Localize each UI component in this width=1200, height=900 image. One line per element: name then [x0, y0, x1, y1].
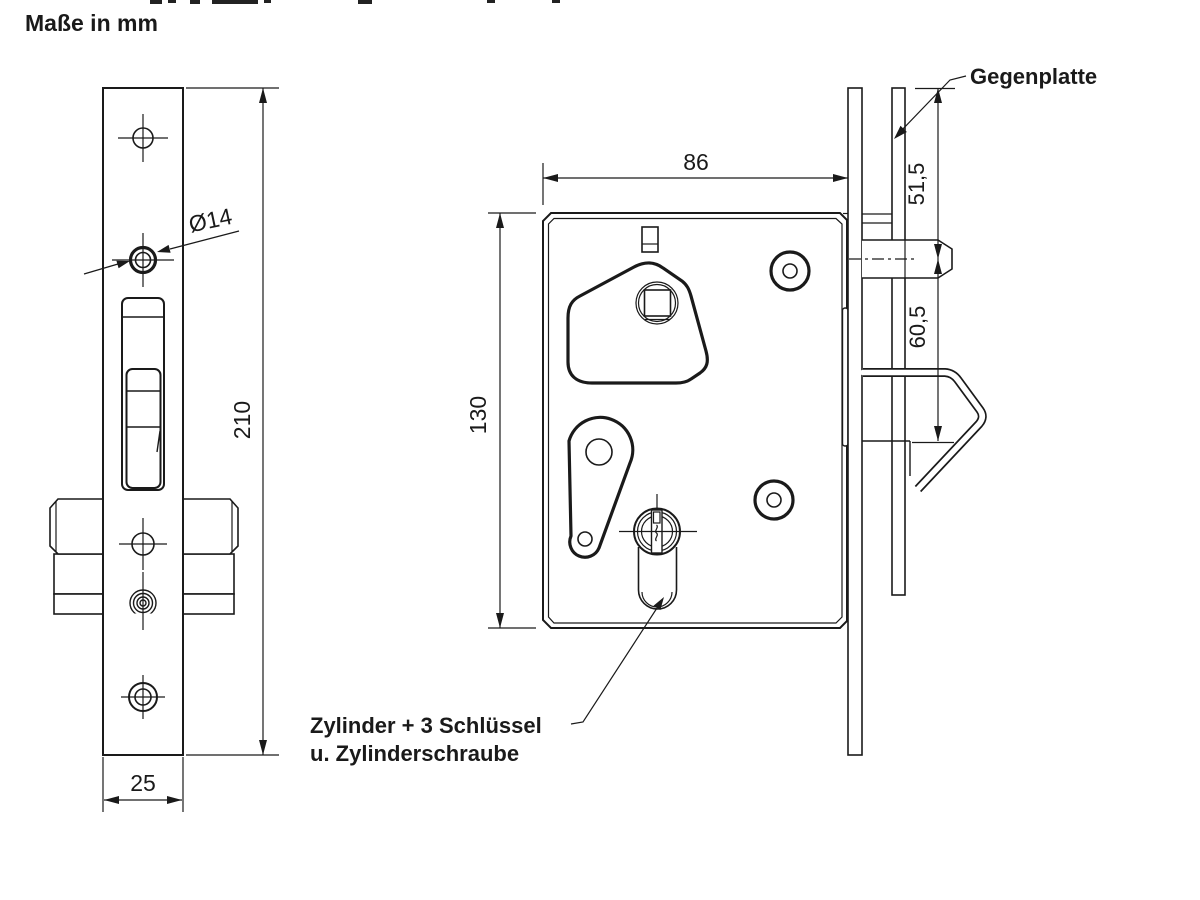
dim-86-text: 86 [683, 149, 709, 175]
hook-bolt-face [127, 369, 161, 488]
cropped-text-remnants [150, 0, 560, 4]
lock-technical-drawing: 210 25 Ø14 86 130 51,5 60,5 Ma [0, 0, 1200, 900]
drawing-title: Maße in mm [25, 10, 158, 36]
dim-d14-text: Ø14 [186, 203, 234, 238]
hook-bolt-side [862, 373, 982, 490]
hook-exit-boss [843, 308, 849, 446]
cylinder-label-line1: Zylinder + 3 Schlüssel [310, 713, 542, 738]
dim-210-text: 210 [229, 401, 255, 439]
dim-130-text: 130 [465, 396, 491, 434]
mounting-plate [848, 88, 862, 755]
dimension-51-5: 51,5 [904, 88, 955, 259]
cylinder-label-line2: u. Zylinderschraube [310, 741, 519, 766]
dimension-130: 130 [465, 213, 536, 628]
dim-51-5-text: 51,5 [904, 163, 929, 206]
dim-25-text: 25 [130, 770, 156, 796]
lock-case-front-view [543, 213, 848, 628]
dim-60-5-text: 60,5 [905, 306, 930, 349]
dimension-86: 86 [543, 149, 848, 205]
gegenplatte-label: Gegenplatte [970, 64, 1097, 89]
technical-drawing-page: 210 25 Ø14 86 130 51,5 60,5 Ma [0, 0, 1200, 900]
faceplate-front-view [50, 88, 238, 755]
dimension-25: 25 [103, 757, 183, 812]
dimension-60-5: 60,5 [905, 259, 954, 443]
dimension-210: 210 [186, 88, 279, 755]
gegenplatte-callout: Gegenplatte [894, 64, 1097, 139]
hook-bolt-window [122, 298, 164, 490]
